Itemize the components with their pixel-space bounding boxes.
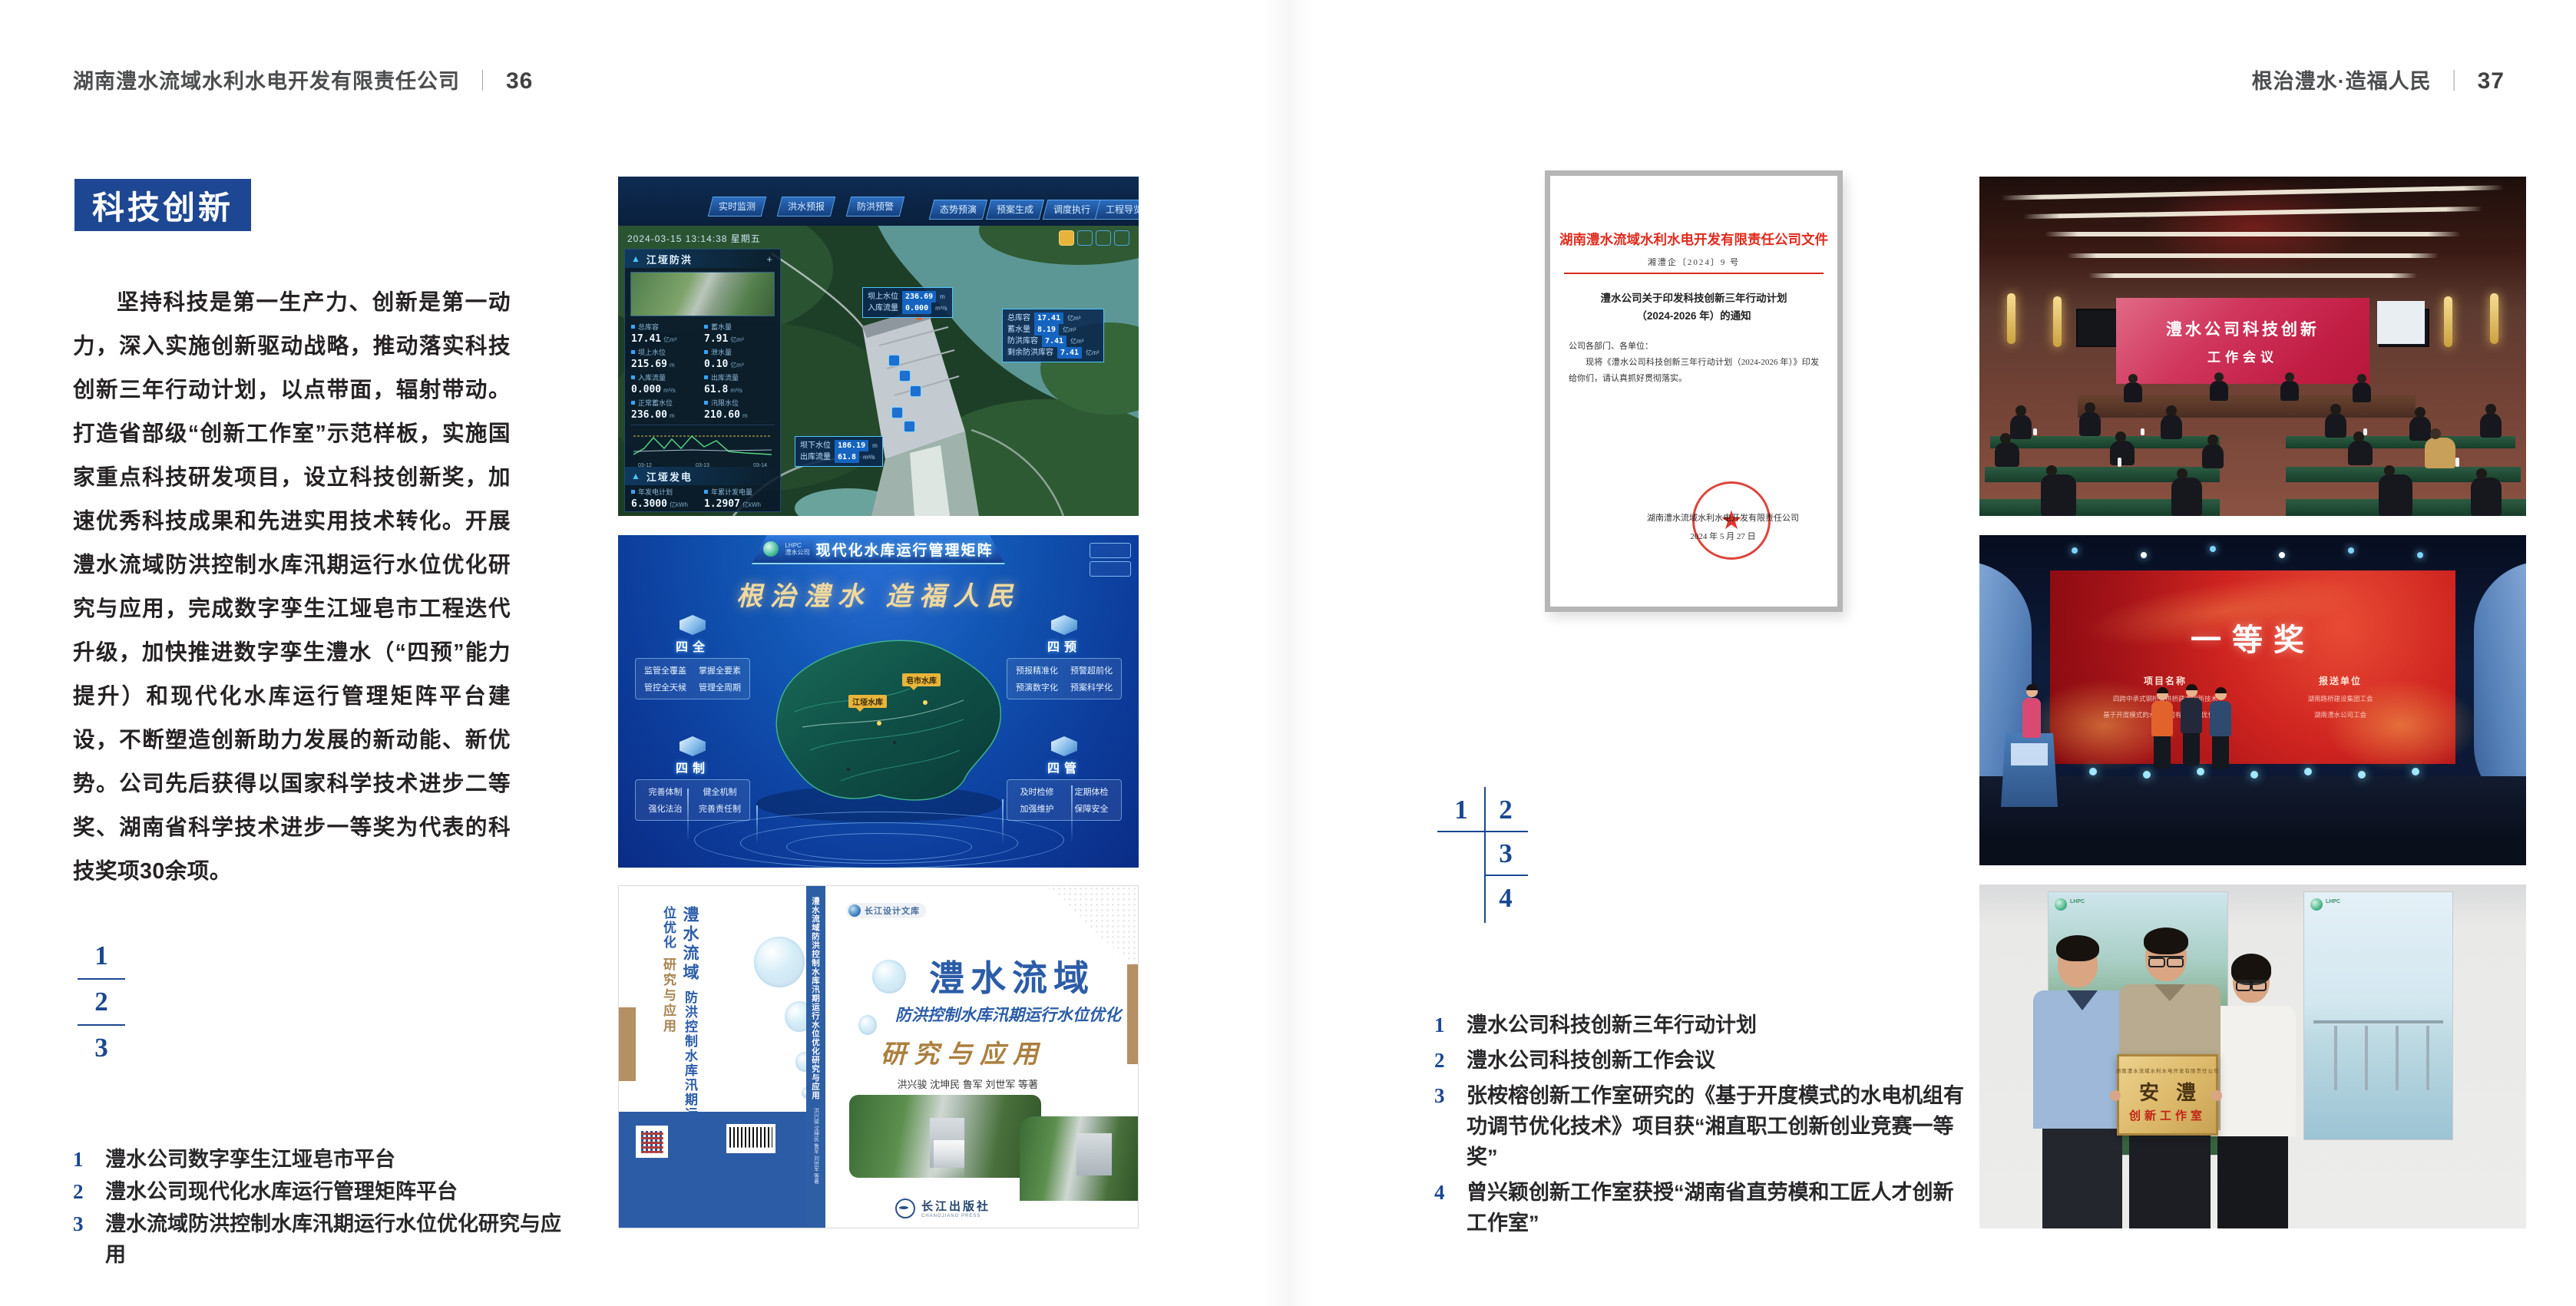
document-body: 公司各部门、各单位： 现将《澧水公司科技创新三年行动计划（2024-2026 年… [1569,339,1819,387]
figure-official-document: 湖南澧水流域水利水电开发有限责任公司文件 湘澧企〔2024〕9 号 澧水公司关于… [1545,170,1843,612]
light-strip [2088,273,2416,278]
ripple-ring [786,833,972,861]
audience-silhouette [2379,474,2412,516]
light-strip [2067,253,2439,258]
spine-title: 澧水流域防洪控制水库汛期运行水位优化研究与应用 [810,897,822,1100]
body-paragraph: 坚持科技是第一生产力、创新是第一动力，深入实施创新驱动战略，推动落实科技创新三年… [73,281,511,894]
flood-control-panel: ▲江垭防洪+ 总库容17.41亿m³ 蓄水量7.91亿m³ 坝上水位215.69… [624,249,781,512]
caption-text: 澧水公司现代化水库运行管理矩阵平台 [105,1176,458,1207]
tab-situation-rehearsal: 态势预演 [929,200,987,220]
caption-item: 3张桉榕创新工作室研究的《基于开度模式的水电机组有功调节优化技术》项目获“湘直职… [1434,1080,1969,1172]
caption-item: 4曾兴颖创新工作室获授“湖南省直劳模和工匠人才创新工作室” [1434,1177,1969,1238]
caption-number: 1 [1434,1010,1467,1040]
stage-light-dot [2348,547,2354,554]
wall-sconce [2007,293,2015,344]
moving-head-light [2409,765,2422,781]
stat-cell: 入库流量0.000m³/s [631,372,701,396]
plaque-type: 创新工作室 [2129,1107,2206,1123]
bolt-icon: ▲ [631,471,642,481]
panel-title: 江垭防洪 [646,252,693,266]
barcode [726,1124,775,1153]
figure-plaque-photo: LHPC LHPC [1979,884,2526,1228]
poster-logo-text: LHPC [2070,899,2085,905]
awardee-navy [2210,689,2231,769]
map-tag-reservoir: 皂市水库 [902,673,941,686]
stat-cell: 正常蓄水位236.00m [631,398,701,422]
lhpc-logo-text: LHPC澧水公司 [785,542,809,556]
star-icon: ★ [1720,505,1743,536]
panel-siguan: 四管 及时检修定期体检 加强维护保障安全 [1007,736,1122,821]
moving-head-light [2141,769,2153,784]
book-spread: 湖南澧水流域水利水电开发有限责任公司｜36 科技创新 坚持科技是第一生产力、创新… [0,0,2576,1306]
wall-sconce [2053,296,2062,347]
tab-project-tour: 工程导览 [1095,200,1139,220]
index-divider [78,978,125,980]
tab-plan-generation: 预案生成 [986,200,1044,220]
datetime-label: 2024-03-15 13:14:38 星期五 [627,232,761,245]
caption-list-right: 1澧水公司科技创新三年行动计划 2澧水公司科技创新工作会议 3张桉榕创新工作室研… [1434,1010,1969,1243]
generation-stats-grid: 年发电计划6.3000亿kWh 年累计发电量1.2907亿kWh 月累计发电量3… [625,485,780,512]
speaker-silhouette [2210,381,2228,401]
stat-cell: 出库流量61.8m³/s [704,372,774,396]
speaker-silhouette [2280,381,2299,401]
caption-text: 张桉榕创新工作室研究的《基于开度模式的水电机组有功调节优化技术》项目获“湘直职工… [1467,1080,1969,1172]
stage-light-dot [2417,552,2423,558]
expand-icon: + [766,253,774,265]
figure-number: 1 [1448,795,1474,825]
caption-item: 1澧水公司科技创新三年行动计划 [1434,1010,1969,1040]
audience-silhouette [1995,442,2019,467]
water-bottle [2033,428,2037,435]
book-subtitle2: 研究与应用 [881,1033,1046,1070]
index-line [1484,875,1528,876]
submitting-unit-column: 报送单位 湖南路桥建设集团工会 湖南澧水公司工会 [2256,674,2425,719]
x-tick: 03-14 [753,463,767,468]
red-rule [1564,273,1824,274]
projection-screen: 澧水公司科技创新 工作会议 [2116,298,2369,384]
audience-silhouette [2471,478,2502,516]
gate-marker [888,355,900,366]
publisher-name-en: CHANGJIANG PRESS [921,1214,990,1218]
map-tooltip-capacity: 总库容17.41亿m³ 蓄水量8.19亿m³ 防洪库容7.41亿m³ 剩余防洪库… [1002,309,1104,362]
cube-icon [1051,615,1077,635]
x-tick: 03-12 [638,463,652,468]
caption-number: 3 [73,1208,105,1270]
publisher-logo [895,1199,915,1218]
book-spine: 澧水流域防洪控制水库汛期运行水位优化研究与应用 洪兴骏 沈坤民 鲁军 刘世军 等… [806,886,825,1228]
figure-number: 3 [1493,838,1519,869]
stat-cell: 泄水量0.10亿m³ [704,347,774,371]
caption-text: 澧水流域防洪控制水库汛期运行水位优化研究与应用 [105,1208,564,1270]
basin-map [733,612,1025,827]
audience-silhouette [2409,416,2431,441]
document-title: 澧水公司关于印发科技创新三年行动计划 （2024-2026 年）的通知 [1550,289,1837,325]
layers-icon [1077,230,1093,246]
dam-photo [849,1095,1041,1178]
caption-text: 澧水公司科技创新三年行动计划 [1467,1010,1757,1040]
figure-number: 3 [78,1030,125,1066]
back-cover-title: 澧水流域 防洪控制水库汛期运行水位优化 研究与应用 [659,906,701,1159]
map-tooltip-downstream: 坝下水位186.19m 出库流量61.8m³/s [795,436,883,467]
header-separator: ｜ [2444,70,2465,93]
publisher-mark: 长江出版社 CHANGJIANG PRESS [895,1198,990,1218]
stat-cell: 汛限水位210.60m [704,398,774,422]
page-number-right: 37 [2478,68,2505,94]
gate-marker [899,370,911,382]
map-tag-reservoir: 江垭水库 [848,695,887,708]
page-number-left: 36 [506,68,533,94]
powerhouse-photo [1020,1116,1138,1201]
quad-title: 四管 [1007,758,1122,776]
book-subtitle: 防洪控制水库汛期运行水位优化 [895,1003,1121,1026]
stage-light-dot [2279,552,2285,558]
stat-cell: 蓄水量7.91亿m³ [704,322,774,346]
panel-header: ▲江垭防洪+ [625,250,780,268]
running-head-right: 根治澧水·造福人民｜37 [2252,64,2505,94]
host-podium [2001,733,2058,807]
lhpc-logo [763,541,779,557]
company-name: 湖南澧水流域水利水电开发有限责任公司 [73,70,460,93]
spillway-mist [934,1140,964,1178]
audience-silhouette [2202,444,2224,468]
speaker-silhouette [2124,382,2142,402]
studio-plaque: 湖南澧水流域水利水电开发有限责任公司 安澧 创新工作室 [2117,1054,2218,1136]
back-tan-bar [619,1007,636,1081]
front-tan-bar [1127,964,1138,1064]
index-line [1484,787,1486,923]
audience-silhouette [2010,415,2032,439]
window-button [1090,543,1131,558]
page-gutter [1263,0,1314,1306]
audience-silhouette-tan-coat [2425,438,2455,468]
platform-title: 现代化水库运行管理矩阵 [815,539,993,560]
section-title: 科技创新 [74,179,251,231]
water-bottle [2363,428,2367,435]
publisher-name: 长江出版社 [921,1198,990,1214]
cube-icon [680,736,706,756]
water-bubble [858,1015,877,1035]
host-pink [2022,686,2041,738]
index-divider [78,1024,125,1026]
user-icon [1059,230,1074,246]
audience-silhouette [2171,478,2202,516]
wall-sconce [2490,293,2498,344]
wall-sconce [2444,296,2452,347]
led-screen: 一等奖 项目名称 四跨中承式钢桁架拱桥建造创新技术 基于开度模式的水电机组有功调… [2050,570,2455,764]
gate-marker [891,407,903,418]
official-seal: ★ [1692,481,1771,560]
figure-platform-screenshot: LHPC澧水公司 现代化水库运行管理矩阵 根治澧水 造福人民 皂市水库 江垭水库 [618,535,1139,868]
menu-button [1090,561,1131,577]
caption-item: 2澧水公司现代化水库运行管理矩阵平台 [73,1176,564,1207]
caption-list-left: 1澧水公司数字孪生江垭皂市平台 2澧水公司现代化水库运行管理矩阵平台 3澧水流域… [73,1144,564,1271]
changjiang-design-logo [848,904,861,917]
back-cover-band [619,1112,822,1228]
awardee-orange [2151,689,2173,769]
locate-icon [1096,230,1111,246]
moving-head-light [2356,769,2368,784]
index-line [1437,831,1528,832]
figure-number: 1 [78,938,125,974]
water-bubble [872,960,906,994]
side-screen [2377,301,2425,344]
audience-silhouette [2325,413,2346,438]
stage-light-dot [2141,552,2147,558]
stat-cell: 年累计发电量1.2907亿kWh [704,487,774,511]
water-bottle [2455,458,2459,467]
gate-marker [904,421,915,432]
document-letterhead: 湖南澧水流域水利水电开发有限责任公司文件 [1550,230,1837,249]
water-bottle [2118,458,2121,467]
audience-silhouette [2110,441,2135,465]
stat-cell: 坝上水位215.69m [631,347,701,371]
caption-number: 2 [73,1176,105,1207]
series-badge: 长江设计文库 [846,903,926,918]
stage-light-dot [2210,546,2216,552]
moving-head-light [2087,765,2099,781]
audience-silhouette [2348,441,2373,465]
figure-number: 2 [78,984,125,1020]
header-separator: ｜ [472,70,494,93]
hand [2211,1090,2222,1101]
caption-number: 4 [1434,1177,1467,1238]
quad-title: 四全 [635,636,750,655]
moving-head-light [2302,765,2314,781]
platform-header: LHPC澧水公司 现代化水库运行管理矩阵 [752,535,1005,564]
panel-siyu: 四预 预报精准化预警超前化 预演数字化预案科学化 [1007,615,1122,699]
stage-floor [1979,776,2526,865]
plaque-name: 安澧 [2122,1077,2213,1106]
cube-icon [1051,736,1077,756]
caption-item: 3澧水流域防洪控制水库汛期运行水位优化研究与应用 [73,1208,564,1270]
panel-header: ▲江垭发电 [625,467,780,485]
award-title: 一等奖 [2050,615,2455,660]
hand [2110,1090,2121,1101]
tab-dispatch-execution: 调度执行 [1043,200,1101,220]
audience-desk [2286,436,2515,448]
figure-meeting-photo: 澧水公司科技创新 工作会议 [1979,177,2526,516]
quad-title: 四预 [1007,636,1122,655]
panel-siquan: 四全 监管全覆盖掌握全要素 管控全天候管理全周期 [635,615,750,699]
running-head-left: 湖南澧水流域水利水电开发有限责任公司｜36 [73,64,533,94]
document-number: 湘澧企〔2024〕9 号 [1550,256,1837,268]
caption-text: 曾兴颖创新工作室获授“湖南省直劳模和工匠人才创新工作室” [1467,1177,1969,1238]
map-tooltip-upstream: 坝上水位236.69m 入库流量0.000m³/s [862,287,953,318]
quad-title: 四制 [635,758,750,776]
moving-head-light [2194,765,2207,781]
screen-title-line2: 工作会议 [2207,346,2278,365]
light-pillar [756,805,758,844]
motto: 根治澧水·造福人民 [2252,70,2432,93]
lhpc-logo [2055,898,2067,911]
gate-marker [910,385,921,397]
caption-item: 1澧水公司数字孪生江垭皂市平台 [73,1144,564,1175]
panel-sizhi: 四制 完善体制健全机制 强化法治完善责任制 [635,736,750,821]
speaker-silhouette [2353,382,2371,402]
stage-light-dot [2072,547,2078,554]
figure-book-cover: 澧水流域 防洪控制水库汛期运行水位优化 研究与应用 澧水流域防洪控制水库汛期运行… [618,885,1139,1228]
water-level-chart: 03-12 03-13 03-14 [630,425,775,465]
stat-cell: 总库容17.41亿m³ [631,322,701,346]
light-pillar [1002,799,1004,845]
figure-number: 4 [1493,883,1519,914]
tab-flood-warning: 防洪预警 [846,197,904,217]
tab-flood-forecast: 洪水预报 [777,197,835,217]
audience-silhouette [2161,415,2182,439]
slogan-calligraphy: 根治澧水 造福人民 [618,575,1139,613]
figure-dashboard-screenshot: 数字孪生江垭皂市 防汛兴利调度 实时监测 洪水预报 防洪预警 态势预演 预案生成… [618,177,1139,516]
poster-bridge: LHPC [2303,891,2453,1140]
caption-number: 1 [73,1144,105,1175]
dam-structure [1076,1133,1112,1175]
water-bottle [2141,428,2144,435]
stat-cell: 年发电计划6.3000亿kWh [631,487,701,511]
caption-text: 澧水公司数字孪生江垭皂市平台 [105,1144,395,1175]
caption-text: 澧水公司科技创新工作会议 [1467,1045,1715,1076]
audience-silhouette [2480,413,2502,438]
cube-icon [680,615,706,635]
panel-title: 江垭发电 [646,469,693,484]
spine-authors: 洪兴骏 沈坤民 鲁军 刘世军 等著 [812,1108,820,1184]
caption-number: 2 [1434,1045,1467,1076]
screen-title-line1: 澧水公司科技创新 [2166,317,2320,340]
plaque-org-line: 湖南澧水流域水利水电开发有限责任公司 [2116,1066,2220,1074]
caption-number: 3 [1434,1080,1467,1172]
book-title: 澧水流域 [929,951,1095,1001]
caption-item: 2澧水公司科技创新工作会议 [1434,1045,1969,1076]
dam-photo-thumbnail [630,272,775,316]
figure-award-photo: 一等奖 项目名称 四跨中承式钢桁架拱桥建造创新技术 基于开度模式的水电机组有功调… [1979,535,2526,865]
light-strip [2045,232,2460,236]
anchor-icon: ▲ [631,253,642,264]
poster-logo-text: LHPC [2326,899,2340,905]
alert-icon [1114,230,1129,246]
tab-realtime-monitor: 实时监测 [708,197,766,217]
presenter-suit [2181,686,2202,765]
moving-head-light [2248,769,2260,784]
x-tick: 03-13 [696,463,709,468]
audience-silhouette [2041,474,2076,516]
lhpc-logo [2310,898,2323,911]
book-authors: 洪兴骏 沈坤民 鲁军 刘世军 等著 [898,1076,1038,1091]
water-bubble [754,937,805,987]
person-white-tee [2210,958,2296,1228]
reservoir-stats-grid: 总库容17.41亿m³ 蓄水量7.91亿m³ 坝上水位215.69m 泄水量0.… [625,320,780,423]
figure-number: 2 [1493,795,1519,825]
audience-silhouette [2079,412,2101,436]
figure-index-left: 1 2 3 [78,938,125,1066]
